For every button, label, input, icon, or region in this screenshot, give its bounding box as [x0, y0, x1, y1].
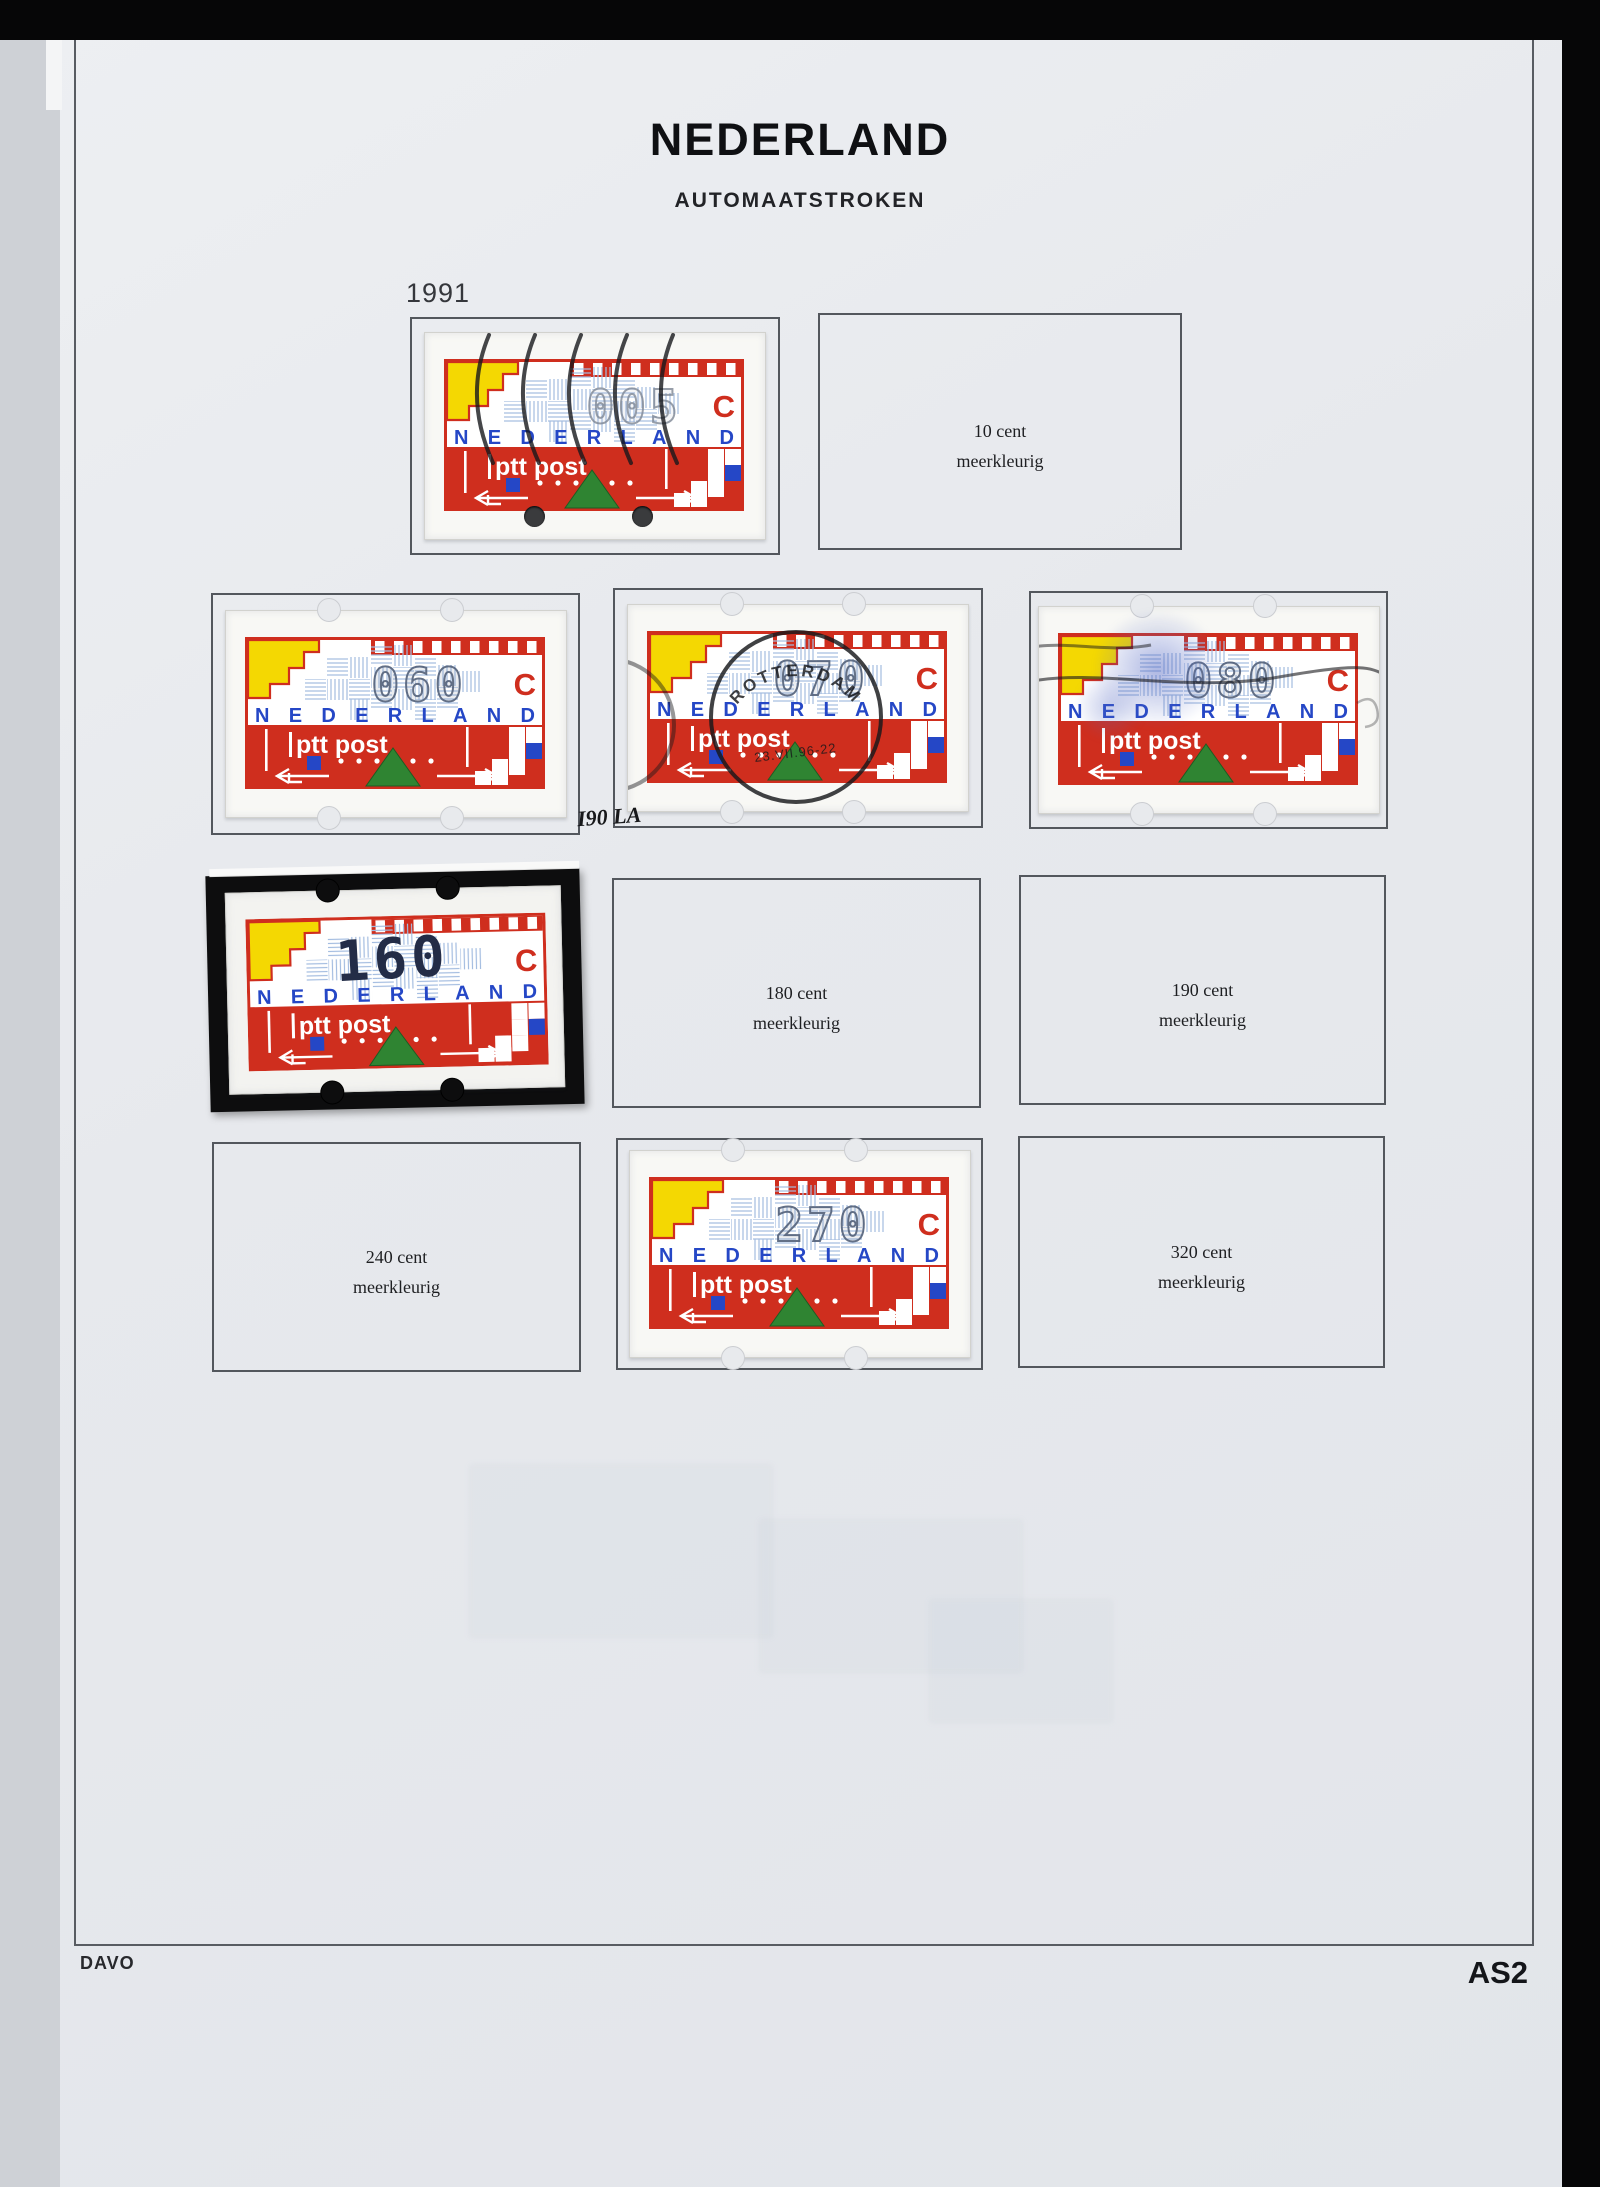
page-left-margin	[0, 40, 60, 2187]
page-code: AS2	[1428, 1955, 1528, 1991]
stamp-backing: 070CNEDERLANDptt post ROTTERDAM23.VII.96…	[627, 604, 969, 812]
stamp-backing: 005CNEDERLANDptt post	[424, 332, 766, 540]
stamp-backing: 080CNEDERLANDptt post	[1038, 606, 1380, 814]
strip-notch	[842, 800, 866, 824]
strip-notch	[720, 592, 744, 616]
punch-hole	[632, 506, 653, 527]
svg-text:ptt post: ptt post	[298, 1010, 391, 1040]
stamp-cell-060: 060CNEDERLANDptt post	[211, 593, 580, 835]
strip-notch	[440, 1077, 465, 1102]
strip-notch	[844, 1346, 868, 1370]
svg-text:C: C	[513, 667, 535, 702]
label-text: 180 cent meerkleurig	[612, 878, 981, 1108]
stamp-cell-005: 005CNEDERLANDptt post	[410, 317, 780, 555]
stamp-artwork: 060CNEDERLANDptt post	[245, 637, 545, 789]
label-line1: 320 cent	[1171, 1242, 1232, 1263]
svg-text:C: C	[713, 389, 735, 424]
stamp-artwork: 005CNEDERLANDptt post	[444, 359, 744, 511]
svg-text:C: C	[515, 943, 538, 978]
label-line2: meerkleurig	[1159, 1010, 1246, 1031]
strip-notch	[1253, 594, 1277, 618]
svg-text:C: C	[916, 661, 938, 696]
pencil-annotation: I90 LA	[576, 802, 642, 832]
strip-notch	[720, 800, 744, 824]
label-line1: 180 cent	[766, 983, 827, 1004]
strip-notch	[1130, 802, 1154, 826]
show-through-ghost	[930, 1600, 1112, 1722]
strip-notch	[317, 598, 341, 622]
label-line1: 240 cent	[366, 1247, 427, 1268]
label-line2: meerkleurig	[1158, 1272, 1245, 1293]
stamp-backing: 060CNEDERLANDptt post	[225, 610, 567, 818]
year-label: 1991	[406, 278, 470, 309]
svg-text:060: 060	[371, 658, 466, 712]
svg-text:270: 270	[775, 1198, 870, 1252]
page-edge-highlight	[46, 40, 62, 110]
stamp-artwork: 160CNEDERLANDptt post	[245, 913, 548, 1072]
strip-notch	[320, 1080, 345, 1105]
svg-text:ptt post: ptt post	[698, 725, 790, 753]
label-line2: meerkleurig	[957, 451, 1044, 472]
svg-text:070: 070	[773, 652, 868, 706]
stamp-backing: 270CNEDERLANDptt post	[629, 1150, 971, 1358]
svg-text:NEDERLAND: NEDERLAND	[657, 699, 937, 721]
svg-text:ptt post: ptt post	[296, 731, 388, 759]
strip-notch	[844, 1138, 868, 1162]
stamp-backing: 160CNEDERLANDptt post	[225, 885, 565, 1095]
stamp-cell-160: 160CNEDERLANDptt post	[205, 868, 584, 1112]
strip-notch	[317, 806, 341, 830]
label-text: 240 cent meerkleurig	[212, 1142, 581, 1372]
album-page: NEDERLAND AUTOMAATSTROKEN 1991 005CNEDER…	[0, 40, 1563, 2187]
svg-text:ptt post: ptt post	[700, 1271, 792, 1299]
strip-notch	[721, 1138, 745, 1162]
label-line1: 10 cent	[974, 421, 1026, 442]
label-line2: meerkleurig	[753, 1013, 840, 1034]
strip-notch	[316, 878, 341, 903]
svg-text:C: C	[917, 1207, 939, 1242]
strip-notch	[1253, 802, 1277, 826]
label-text: 10 cent meerkleurig	[818, 313, 1182, 550]
svg-text:C: C	[1326, 663, 1348, 698]
page-subtitle: AUTOMAATSTROKEN	[300, 189, 1300, 213]
stamp-cell-080: 080CNEDERLANDptt post	[1029, 591, 1388, 829]
strip-notch	[440, 806, 464, 830]
label-box-180-cent: 180 cent meerkleurig	[612, 878, 981, 1108]
photo-black-edge-top	[0, 0, 1600, 40]
stamp-cell-270: 270CNEDERLANDptt post	[616, 1138, 983, 1370]
label-box-190-cent: 190 cent meerkleurig	[1019, 875, 1386, 1105]
page-title: NEDERLAND	[300, 114, 1300, 166]
svg-text:NEDERLAND: NEDERLAND	[255, 705, 535, 727]
stamp-artwork: 270CNEDERLANDptt post	[649, 1177, 949, 1329]
svg-text:ptt post: ptt post	[495, 453, 587, 481]
publisher-logo: DAVO	[80, 1953, 135, 1974]
ink-smudge	[1075, 671, 1145, 741]
label-box-240-cent: 240 cent meerkleurig	[212, 1142, 581, 1372]
stamp-cell-070: 070CNEDERLANDptt post ROTTERDAM23.VII.96…	[613, 588, 983, 828]
svg-text:005: 005	[586, 380, 681, 434]
label-text: 190 cent meerkleurig	[1019, 875, 1386, 1105]
strip-notch	[440, 598, 464, 622]
svg-text:NEDERLAND: NEDERLAND	[454, 427, 734, 449]
label-line1: 190 cent	[1172, 980, 1233, 1001]
label-box-320-cent: 320 cent meerkleurig	[1018, 1136, 1385, 1368]
strip-notch	[842, 592, 866, 616]
label-line2: meerkleurig	[353, 1277, 440, 1298]
svg-text:NEDERLAND: NEDERLAND	[659, 1245, 939, 1267]
photo-black-edge-right	[1562, 0, 1600, 2187]
strip-notch	[436, 875, 461, 900]
stamp-artwork: 070CNEDERLANDptt post	[647, 631, 947, 783]
strip-notch	[721, 1346, 745, 1370]
label-box-10-cent: 10 cent meerkleurig	[818, 313, 1182, 550]
punch-hole	[524, 506, 545, 527]
scanned-album-photo: NEDERLAND AUTOMAATSTROKEN 1991 005CNEDER…	[0, 0, 1600, 2187]
label-text: 320 cent meerkleurig	[1018, 1136, 1385, 1368]
show-through-ghost	[470, 1465, 772, 1637]
